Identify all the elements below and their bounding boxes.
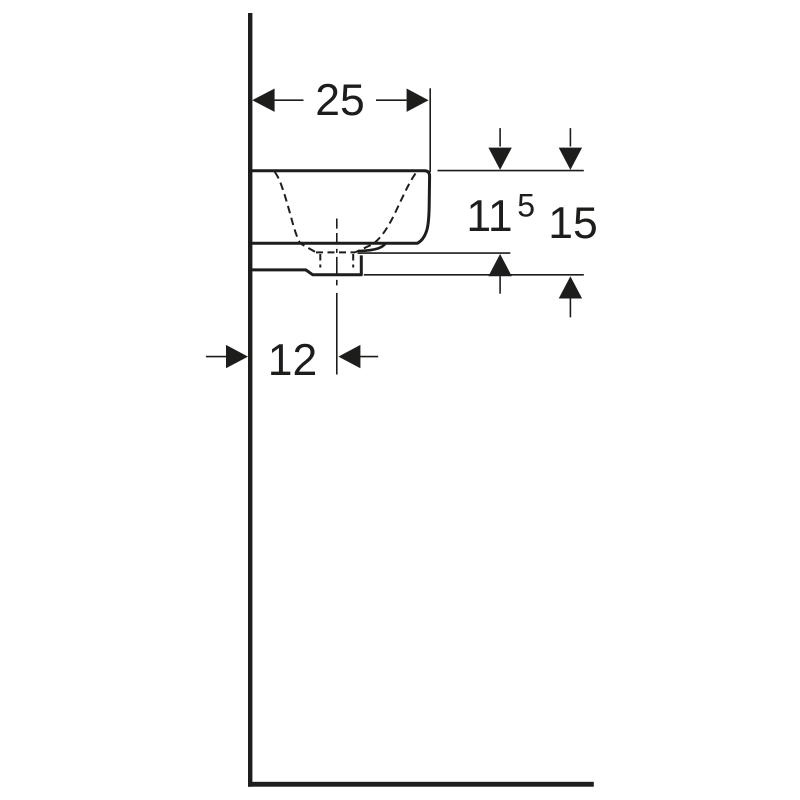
- svg-text:11: 11: [466, 192, 512, 241]
- svg-text:12: 12: [268, 336, 318, 385]
- svg-text:5: 5: [517, 187, 535, 223]
- svg-text:25: 25: [315, 76, 365, 125]
- svg-text:15: 15: [548, 199, 598, 248]
